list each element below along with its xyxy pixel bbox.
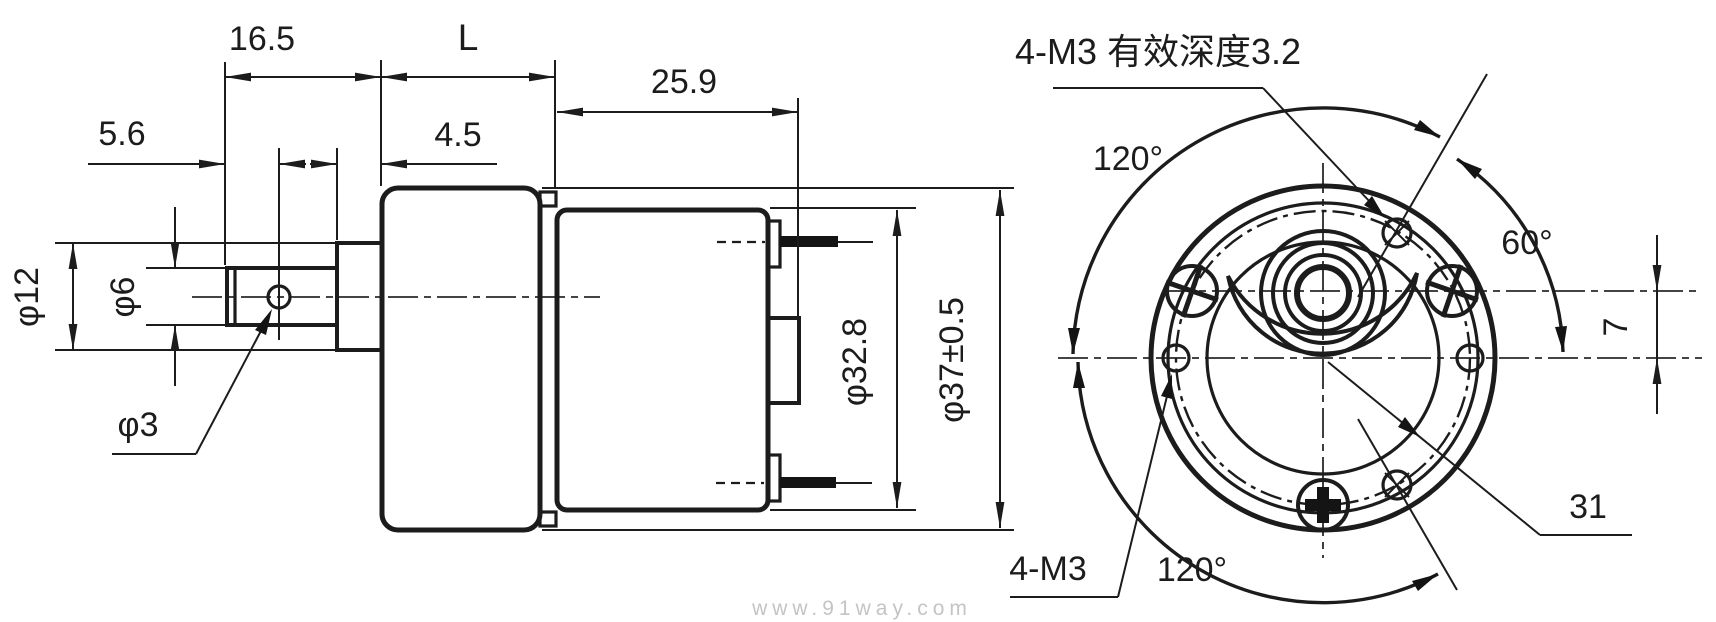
phi3-leader: [196, 327, 263, 454]
side-view: φ3 16.5 L 5.6 4.5 25.9: [8, 17, 1014, 530]
terminal-bottom-pin: [780, 477, 836, 488]
arc120top-arrow-b: [1068, 328, 1080, 354]
arc60-arrow-a: [1555, 326, 1567, 352]
terminal-top-pin: [780, 236, 838, 247]
arc120top-arrow-a: [1414, 120, 1440, 137]
phi3-leader-arrow: [255, 309, 272, 335]
label-m3: 4-M3: [1009, 550, 1086, 588]
label-120-top: 120°: [1093, 140, 1163, 178]
arc120bot-arrow-a: [1073, 362, 1085, 388]
phi3-label: φ3: [118, 406, 159, 444]
label-m3-depth: 4-M3 有效深度3.2: [1015, 31, 1301, 72]
label-phi6: φ6: [104, 277, 142, 318]
label-4-5: 4.5: [434, 116, 481, 154]
label-120-bottom: 120°: [1157, 551, 1227, 589]
front-view: 4-M3 有效深度3.2 120° 60° 4-M3 120° 31 7: [1009, 31, 1702, 603]
label-60: 60°: [1501, 224, 1552, 262]
label-31: 31: [1569, 488, 1607, 526]
label-phi37: φ37±0.5: [933, 297, 971, 423]
label-phi32-8: φ32.8: [836, 318, 874, 406]
label-phi12: φ12: [8, 267, 46, 327]
drawing-canvas: φ3 16.5 L 5.6 4.5 25.9: [0, 0, 1716, 622]
m3-arrow: [1161, 374, 1172, 399]
screw-bottom: [1298, 480, 1348, 530]
arc120bot-arrow-b: [1412, 574, 1438, 591]
label-5-6: 5.6: [98, 115, 145, 153]
watermark: www.91way.com: [751, 597, 972, 620]
gearbox-body: [382, 188, 540, 530]
gear-motor-dimension-drawing: φ3 16.5 L 5.6 4.5 25.9: [0, 0, 1716, 622]
motor-body: [557, 210, 768, 510]
label-L: L: [458, 17, 479, 58]
brush-cover-tab: [768, 318, 799, 403]
label-25-9: 25.9: [651, 63, 717, 101]
label-16-5: 16.5: [229, 20, 295, 58]
label-7: 7: [1597, 318, 1635, 337]
